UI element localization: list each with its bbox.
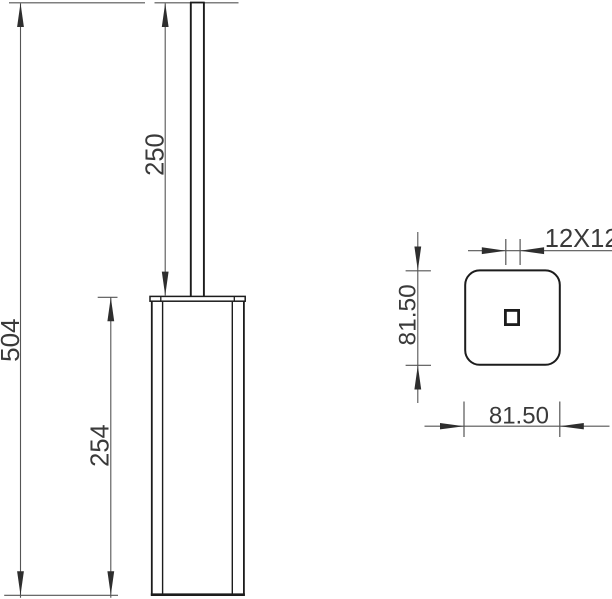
svg-text:504: 504 bbox=[0, 319, 25, 362]
svg-text:12X12: 12X12 bbox=[545, 225, 612, 253]
svg-text:254: 254 bbox=[87, 424, 115, 467]
svg-text:81.50: 81.50 bbox=[394, 284, 421, 345]
svg-text:250: 250 bbox=[141, 133, 169, 176]
svg-text:81.50: 81.50 bbox=[489, 402, 549, 429]
